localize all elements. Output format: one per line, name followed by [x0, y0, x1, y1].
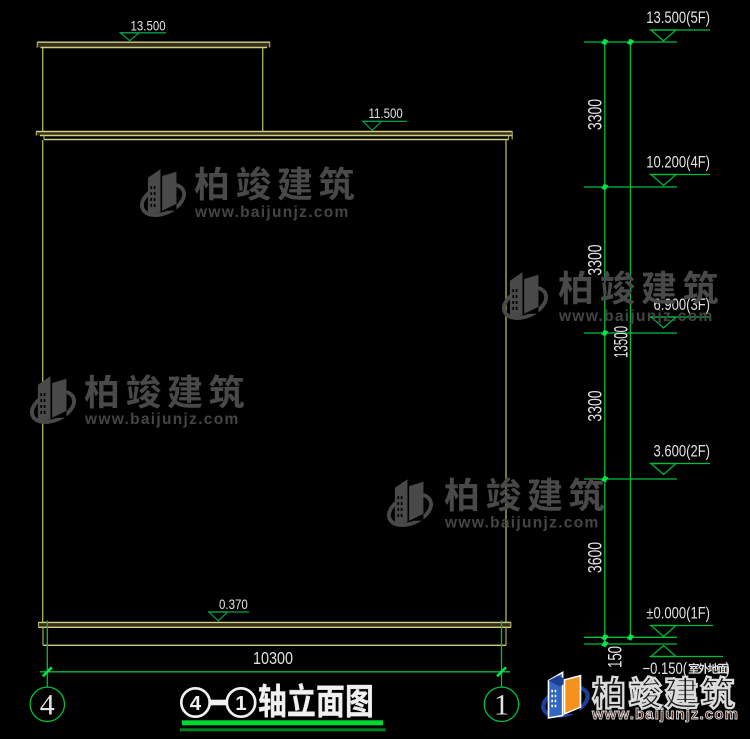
svg-text:www.baijunjz.com: www.baijunjz.com [194, 204, 350, 221]
svg-text:3300: 3300 [584, 244, 606, 275]
svg-text:13.500: 13.500 [131, 17, 166, 33]
svg-text:150: 150 [604, 646, 626, 668]
svg-text:10300: 10300 [253, 649, 293, 669]
svg-text:3300: 3300 [584, 390, 606, 421]
svg-text:3300: 3300 [584, 99, 606, 130]
svg-text:4: 4 [40, 689, 55, 722]
svg-text:10.200(4F): 10.200(4F) [646, 154, 710, 172]
svg-text:13500: 13500 [612, 326, 633, 358]
svg-text:11.500: 11.500 [369, 105, 403, 121]
svg-text:13.500(5F): 13.500(5F) [646, 10, 710, 28]
svg-text:www.baijunjz.com: www.baijunjz.com [558, 308, 714, 325]
svg-text:1: 1 [494, 689, 509, 722]
svg-text:www.baijunjz.com: www.baijunjz.com [84, 411, 240, 428]
svg-text:3600: 3600 [584, 542, 606, 573]
svg-text:0.370: 0.370 [219, 596, 248, 612]
svg-text:3.600(2F): 3.600(2F) [654, 443, 711, 461]
svg-text:): ) [726, 661, 730, 679]
svg-text:4: 4 [190, 692, 202, 715]
svg-text:www.baijunjz.com: www.baijunjz.com [591, 706, 739, 723]
svg-text:1: 1 [235, 692, 246, 715]
svg-text:www.baijunjz.com: www.baijunjz.com [444, 515, 600, 532]
svg-text:±0.000(1F): ±0.000(1F) [646, 605, 710, 623]
